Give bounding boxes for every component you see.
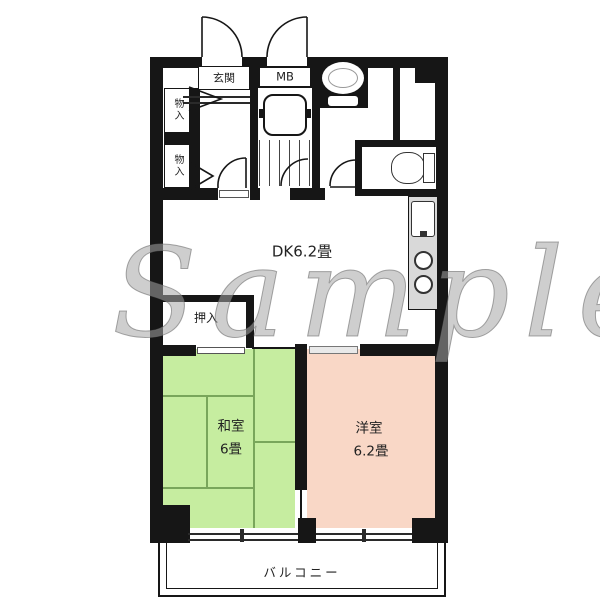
meter-box-label: MB bbox=[276, 71, 294, 83]
entrance-step-arrow-icon bbox=[189, 87, 221, 111]
entrance-label: 玄関 bbox=[213, 73, 235, 84]
bathroom-door-swing-icon bbox=[281, 159, 308, 186]
western-room-size: 6.2畳 bbox=[354, 445, 389, 459]
western-room-label: 洋室 bbox=[356, 422, 383, 436]
storage-lower-label: 物入 bbox=[172, 154, 182, 178]
entrance-door-swing-icon bbox=[202, 17, 242, 57]
japanese-room-label: 和室 bbox=[218, 420, 245, 434]
storage-upper-label: 物入 bbox=[172, 98, 182, 122]
door-swing-overlay bbox=[0, 0, 600, 600]
meterbox-door-swing-icon bbox=[267, 17, 307, 57]
storage-door-swing-icon bbox=[191, 163, 213, 189]
balcony-label: バルコニー bbox=[263, 567, 340, 580]
hall-door-swing-icon bbox=[218, 158, 246, 188]
floor-plan: 玄関 MB 物入 物入 DK6.2畳 押入 和室 6畳 洋室 6.2畳 バルコニ… bbox=[0, 0, 600, 600]
japanese-room-size: 6畳 bbox=[220, 443, 242, 457]
toilet-door-swing-icon bbox=[330, 160, 356, 187]
closet-label: 押入 bbox=[194, 312, 218, 324]
dining-kitchen-label: DK6.2畳 bbox=[272, 245, 332, 260]
